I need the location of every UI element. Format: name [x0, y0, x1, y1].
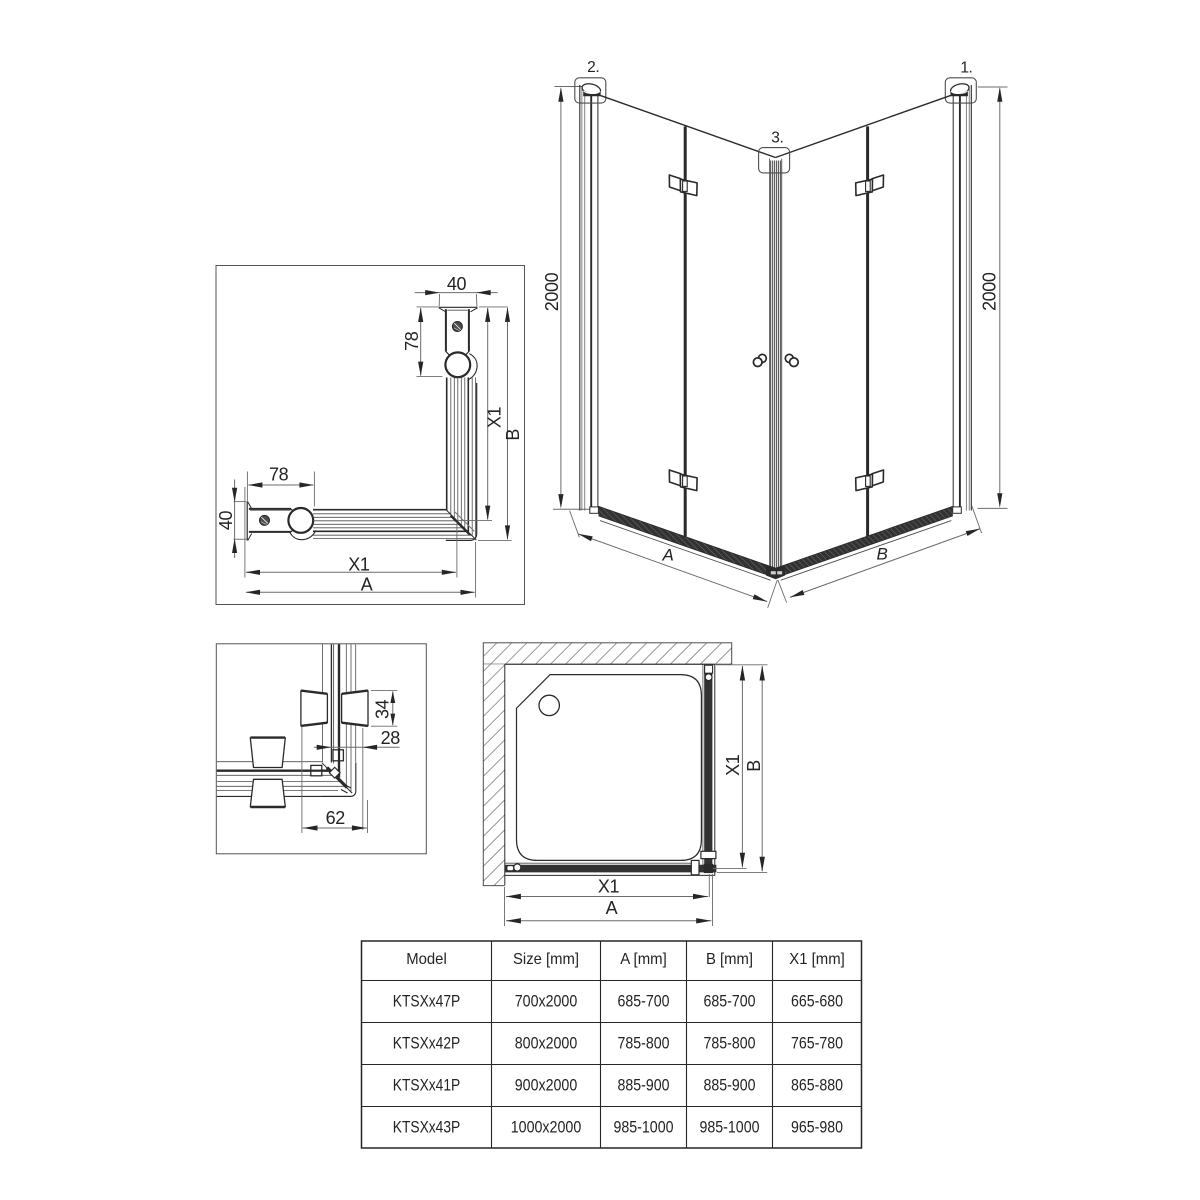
svg-text:B: B [877, 545, 888, 564]
svg-text:A: A [662, 546, 674, 565]
svg-text:900x2000: 900x2000 [515, 1077, 578, 1095]
svg-text:A: A [606, 898, 618, 918]
svg-text:X1: X1 [598, 877, 620, 897]
svg-text:2.: 2. [587, 59, 599, 76]
svg-text:34: 34 [372, 699, 392, 719]
svg-text:X1: X1 [485, 407, 505, 429]
svg-text:A: A [361, 575, 373, 595]
svg-text:KTSXx41P: KTSXx41P [393, 1077, 461, 1095]
svg-text:X1 [mm]: X1 [mm] [789, 951, 845, 968]
svg-text:Size [mm]: Size [mm] [513, 951, 579, 968]
svg-text:1000x2000: 1000x2000 [511, 1118, 582, 1136]
svg-text:78: 78 [269, 464, 289, 484]
svg-text:X1: X1 [348, 555, 370, 575]
svg-text:700x2000: 700x2000 [515, 993, 578, 1011]
svg-text:2000: 2000 [542, 272, 562, 311]
svg-text:B [mm]: B [mm] [706, 951, 753, 968]
svg-text:40: 40 [447, 274, 467, 294]
svg-text:885-900: 885-900 [704, 1077, 756, 1095]
svg-text:800x2000: 800x2000 [515, 1035, 578, 1053]
svg-text:78: 78 [402, 331, 422, 351]
svg-text:KTSXx47P: KTSXx47P [393, 993, 461, 1011]
svg-text:40: 40 [216, 511, 236, 531]
svg-text:765-780: 765-780 [791, 1035, 843, 1053]
svg-text:885-900: 885-900 [618, 1077, 670, 1095]
svg-text:685-700: 685-700 [618, 993, 670, 1011]
svg-text:B: B [503, 429, 523, 441]
svg-text:985-1000: 985-1000 [614, 1118, 674, 1136]
svg-text:2000: 2000 [980, 272, 1000, 311]
svg-text:B: B [744, 760, 764, 772]
svg-text:KTSXx43P: KTSXx43P [393, 1118, 461, 1136]
svg-text:62: 62 [326, 808, 346, 828]
svg-text:X1: X1 [723, 754, 743, 776]
svg-text:665-680: 665-680 [791, 993, 843, 1011]
svg-text:1.: 1. [960, 60, 972, 77]
svg-text:A [mm]: A [mm] [620, 951, 667, 968]
svg-text:685-700: 685-700 [704, 993, 756, 1011]
svg-text:965-980: 965-980 [791, 1118, 843, 1136]
svg-text:785-800: 785-800 [618, 1035, 670, 1053]
svg-text:Model: Model [406, 951, 447, 968]
svg-text:985-1000: 985-1000 [700, 1118, 760, 1136]
svg-text:865-880: 865-880 [791, 1077, 843, 1095]
svg-text:3.: 3. [771, 130, 783, 147]
svg-text:KTSXx42P: KTSXx42P [393, 1035, 461, 1053]
svg-text:28: 28 [381, 728, 401, 748]
svg-text:785-800: 785-800 [704, 1035, 756, 1053]
